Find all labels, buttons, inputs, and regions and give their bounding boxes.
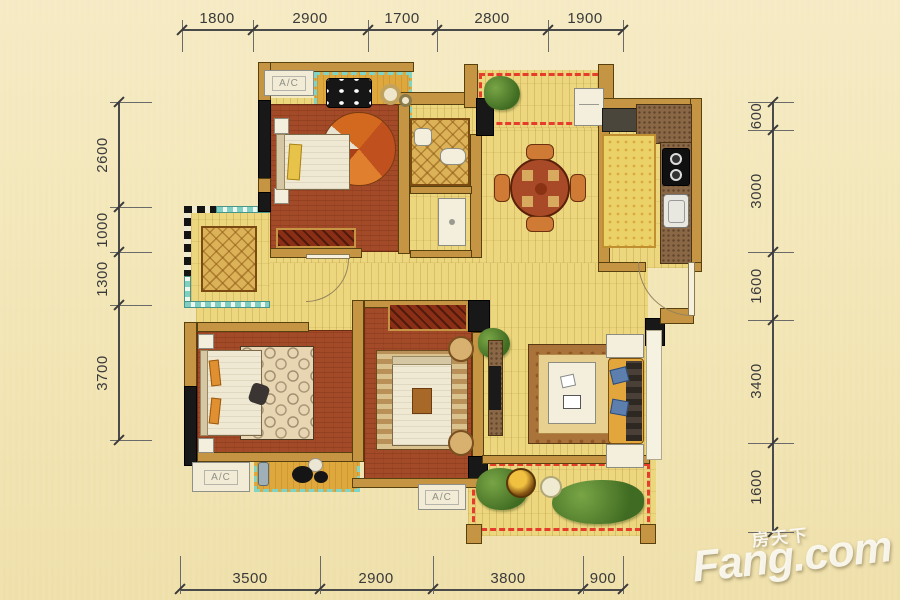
wall-bath-right [470, 134, 482, 258]
shear-wall-bedroom2-top [468, 300, 490, 332]
dim-label-bottom: 900 [568, 570, 638, 588]
ac-pad-bottom-mid: A/C [418, 484, 466, 510]
bedroom2-headboard [392, 356, 452, 365]
stove-burner [670, 169, 682, 181]
living-window-wall [646, 330, 662, 460]
wall-master-top [197, 322, 309, 332]
dining-chair-south [526, 216, 554, 232]
balcony-rail-bottom [184, 301, 270, 308]
dim-label-right: 3000 [748, 156, 766, 226]
wardrobe-bedroom2 [388, 303, 468, 331]
bathroom-sink [414, 128, 432, 146]
dim-label-right: 600 [748, 81, 766, 151]
terrace-cabinet-line [579, 104, 599, 105]
master-headboard [200, 350, 208, 436]
dim-label-top: 1800 [182, 10, 252, 28]
kitchen-hood [602, 108, 638, 132]
shear-wall-bedroom1-left [258, 100, 271, 182]
dim-label-top: 1900 [550, 10, 620, 28]
utility-plate-large [380, 84, 401, 105]
coffee-table [548, 362, 596, 424]
balcony-lattice-rug [201, 226, 257, 292]
terrace-post-bottom-left [466, 524, 482, 544]
bathroom-toilet [440, 148, 466, 165]
shower-fixture-knob [449, 219, 455, 225]
dining-table-check [522, 170, 533, 181]
sofa-pillow [610, 399, 629, 417]
wall-niche-bottom [410, 250, 472, 258]
dining-chair-west [494, 174, 510, 202]
floorplan-page: A/C A/C A/C 1800 2900 1700 2800 1900 350… [0, 0, 900, 600]
terrace-post-bottom-right [640, 524, 656, 544]
dim-label-bottom: 2900 [341, 570, 411, 588]
fang-watermark: 房天下 Fang.com [689, 511, 900, 600]
wardrobe-bedroom1 [276, 228, 356, 248]
dining-table [510, 158, 570, 218]
dim-ext [623, 20, 624, 52]
dim-ext [253, 20, 254, 52]
terrace-cabinet [574, 88, 604, 126]
terrace-pot [506, 468, 536, 498]
kitchen-mat [602, 134, 656, 248]
coffee-table-book [560, 374, 576, 389]
utility-bench [258, 462, 269, 486]
dim-label-bottom: 3500 [215, 570, 285, 588]
utility-tray [326, 78, 372, 108]
ac-pad-bottom-left: A/C [192, 462, 250, 492]
dining-chair-north [526, 144, 554, 160]
sofa-side-table-bottom [606, 444, 644, 468]
kitchen-sink [663, 194, 689, 228]
utility-stone-black [292, 466, 313, 483]
dim-label-top: 1700 [367, 10, 437, 28]
utility-plate-small [399, 94, 412, 107]
terrace-bush-right [552, 480, 644, 524]
master-nightstand-top [198, 334, 214, 349]
coffee-table-tray [563, 395, 581, 409]
wall-niche-top [410, 186, 472, 194]
stove-burner [670, 153, 682, 165]
ac-pad-label: A/C [272, 76, 306, 91]
wall-master-bottom [197, 452, 357, 462]
dim-line-top [182, 29, 623, 31]
kitchen-stove [662, 148, 690, 186]
dim-label-left: 1300 [94, 244, 112, 314]
ac-pad-top: A/C [264, 70, 314, 96]
dim-label-right: 1600 [748, 251, 766, 321]
bedroom2-pouf [448, 430, 474, 456]
dim-label-right: 3400 [748, 346, 766, 416]
dim-line-bottom [180, 589, 623, 591]
shear-wall-bedroom1-left2 [258, 192, 271, 212]
dim-line-left [118, 102, 120, 440]
balcony-structural-dash-left [184, 206, 191, 278]
dim-label-left: 3700 [94, 338, 112, 408]
dim-label-right: 1600 [748, 452, 766, 522]
dim-ext [548, 20, 549, 52]
ac-pad-label: A/C [204, 470, 238, 485]
dim-ext [437, 20, 438, 52]
dim-label-left: 2600 [94, 120, 112, 190]
dining-table-check [548, 170, 559, 181]
fang-watermark-en: Fang.com [690, 522, 894, 593]
dining-table-check [522, 196, 533, 207]
dining-chair-east [570, 174, 586, 202]
wall-bedroom1-right [398, 104, 410, 254]
terrace-plant-icon [484, 76, 520, 110]
bedroom2-runner [412, 388, 432, 414]
bedroom2-pouf [448, 336, 474, 362]
kitchen-sink-basin [668, 200, 685, 223]
dining-table-center [535, 183, 547, 195]
wall-master-left [184, 322, 197, 390]
master-nightstand-bottom [198, 438, 214, 453]
dining-table-check [548, 196, 559, 207]
bedroom1-headboard [276, 134, 285, 190]
terrace-plate [540, 476, 562, 498]
dim-label-bottom: 3800 [473, 570, 543, 588]
shear-wall-master-left [184, 386, 197, 466]
sofa-side-table-top [606, 334, 644, 358]
wall-master-bedroom2 [352, 300, 364, 462]
ac-pad-label: A/C [425, 490, 459, 505]
tv-icon [489, 366, 501, 410]
utility-stone-black [314, 471, 328, 483]
bedroom1-nightstand-top [274, 118, 289, 134]
dim-label-top: 2900 [275, 10, 345, 28]
dim-label-top: 2800 [457, 10, 527, 28]
bedroom1-nightstand-bottom [274, 188, 289, 204]
bedroom1-pillow [287, 144, 302, 181]
